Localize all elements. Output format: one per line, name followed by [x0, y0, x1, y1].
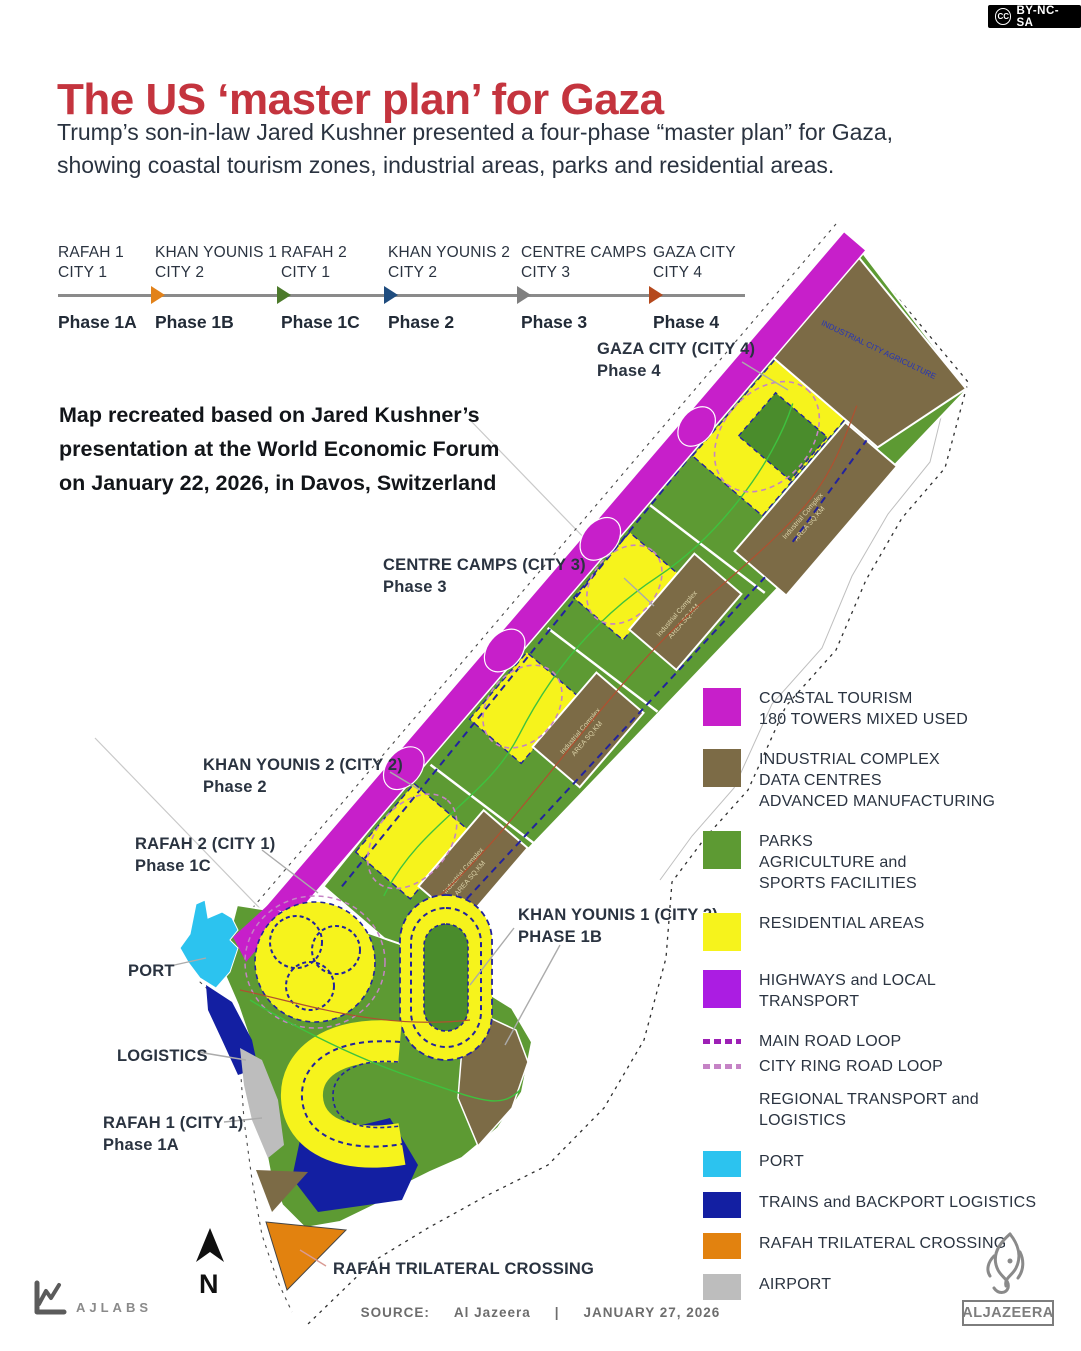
legend-key	[703, 1233, 759, 1259]
timeline-arrow-icon	[151, 286, 165, 304]
legend-swatch	[703, 913, 741, 951]
source-label: SOURCE:	[361, 1305, 430, 1320]
legend-key	[703, 1089, 759, 1131]
timeline-city-label: KHAN YOUNIS 2CITY 2	[388, 243, 521, 285]
legend-key	[703, 1031, 759, 1052]
timeline-phase-label: Phase 4	[653, 312, 745, 333]
timeline-phase-label: Phase 3	[521, 312, 653, 333]
residential-flower	[255, 902, 375, 1022]
legend-key	[703, 749, 759, 812]
legend-text: MAIN ROAD LOOP	[759, 1031, 901, 1052]
timeline-phase-phase-1b: KHAN YOUNIS 1CITY 2Phase 1B	[155, 243, 281, 333]
timeline-axis-segment	[653, 285, 745, 305]
timeline-city-label: RAFAH 1CITY 1	[58, 243, 155, 285]
source-row: SOURCE:Al Jazeera|JANUARY 27, 2026	[0, 1305, 1081, 1320]
source-divider: |	[555, 1305, 560, 1320]
legend-swatch	[703, 688, 741, 726]
timeline-phase-label: Phase 1A	[58, 312, 155, 333]
rafah-crossing-triangle	[266, 1222, 346, 1290]
legend-text: RESIDENTIAL AREAS	[759, 913, 925, 951]
legend-text: PARKSAGRICULTURE andSPORTS FACILITIES	[759, 831, 917, 894]
aljazeera-calligraphy-icon	[958, 1228, 1058, 1298]
timeline-arrow-icon	[517, 286, 531, 304]
legend-swatch	[703, 1151, 741, 1177]
legend-dash-line	[703, 1064, 741, 1069]
timeline-arrow-icon	[277, 286, 291, 304]
timeline-phase-phase-2: KHAN YOUNIS 2CITY 2Phase 2	[388, 243, 521, 333]
legend-item-main-road-loop: MAIN ROAD LOOP	[703, 1031, 1063, 1052]
legend-item-industrial-complex: INDUSTRIAL COMPLEXDATA CENTRESADVANCED M…	[703, 749, 1063, 812]
timeline-phase-phase-1c: RAFAH 2CITY 1Phase 1C	[281, 243, 388, 333]
legend-swatch	[703, 831, 741, 869]
legend-key	[703, 1274, 759, 1300]
map-note: Map recreated based on Jared Kushner’s p…	[59, 398, 499, 500]
legend-key	[703, 1056, 759, 1077]
legend-item-trains-and-backport-logistics: TRAINS and BACKPORT LOGISTICS	[703, 1192, 1063, 1218]
timeline-city-label: KHAN YOUNIS 1CITY 2	[155, 243, 281, 285]
legend-key	[703, 1151, 759, 1177]
timeline-axis-segment	[521, 285, 653, 305]
timeline-city-label: CENTRE CAMPSCITY 3	[521, 243, 653, 285]
legend-key	[703, 1192, 759, 1218]
timeline-city-label: GAZA CITYCITY 4	[653, 243, 745, 285]
legend-item-port: PORT	[703, 1151, 1063, 1177]
legend-text: REGIONAL TRANSPORT and LOGISTICS	[759, 1089, 1063, 1131]
map-legend: COASTAL TOURISM180 TOWERS MIXED USEDINDU…	[703, 688, 1063, 1315]
legend-key	[703, 913, 759, 951]
timeline-axis-segment	[388, 285, 521, 305]
legend-text: AIRPORT	[759, 1274, 831, 1300]
north-arrow-icon	[196, 1228, 224, 1262]
legend-text: TRAINS and BACKPORT LOGISTICS	[759, 1192, 1036, 1218]
timeline-arrow-icon	[649, 286, 663, 304]
timeline-axis-segment	[155, 285, 281, 305]
timeline-city-label: RAFAH 2CITY 1	[281, 243, 388, 285]
date-value: JANUARY 27, 2026	[584, 1305, 721, 1320]
legend-key	[703, 688, 759, 730]
page-subtitle: Trump’s son-in-law Jared Kushner present…	[57, 116, 893, 182]
legend-swatch	[703, 749, 741, 787]
compass-n-label: N	[199, 1269, 219, 1299]
legend-item-regional-transport-and-logistics: REGIONAL TRANSPORT and LOGISTICS	[703, 1089, 1063, 1131]
cc-icon: CC	[995, 8, 1011, 25]
timeline-arrow-icon	[384, 286, 398, 304]
legend-item-parks: PARKSAGRICULTURE andSPORTS FACILITIES	[703, 831, 1063, 894]
cc-license-badge: CC BY-NC-SA	[988, 5, 1081, 28]
legend-item-residential-areas: RESIDENTIAL AREAS	[703, 913, 1063, 951]
legend-text: HIGHWAYS and LOCALTRANSPORT	[759, 970, 936, 1012]
legend-text: PORT	[759, 1151, 804, 1177]
legend-text: INDUSTRIAL COMPLEXDATA CENTRESADVANCED M…	[759, 749, 995, 812]
timeline-axis-segment	[58, 285, 155, 305]
aljazeera-logo: ALJAZEERA	[958, 1228, 1058, 1328]
legend-swatch	[703, 1192, 741, 1218]
timeline-phase-label: Phase 2	[388, 312, 521, 333]
timeline-phase-phase-1a: RAFAH 1CITY 1Phase 1A	[58, 243, 155, 333]
timeline-phase-label: Phase 1C	[281, 312, 388, 333]
legend-item-coastal-tourism: COASTAL TOURISM180 TOWERS MIXED USED	[703, 688, 1063, 730]
legend-item-highways-and-local: HIGHWAYS and LOCALTRANSPORT	[703, 970, 1063, 1012]
legend-text: COASTAL TOURISM180 TOWERS MIXED USED	[759, 688, 968, 730]
legend-swatch	[703, 1274, 741, 1300]
aljazeera-wordmark: ALJAZEERA	[962, 1300, 1054, 1326]
legend-swatch	[703, 1233, 741, 1259]
legend-dash-line	[703, 1039, 741, 1044]
legend-text: CITY RING ROAD LOOP	[759, 1056, 943, 1077]
timeline-phase-label: Phase 1B	[155, 312, 281, 333]
timeline-phase-phase-3: CENTRE CAMPSCITY 3Phase 3	[521, 243, 653, 333]
license-label: BY-NC-SA	[1016, 5, 1074, 29]
infographic-page: Industrial ComplexAREA SQ.KM Industrial …	[0, 0, 1081, 1351]
phase-timeline: RAFAH 1CITY 1Phase 1AKHAN YOUNIS 1CITY 2…	[58, 243, 745, 333]
legend-key	[703, 831, 759, 894]
source-value: Al Jazeera	[454, 1305, 531, 1320]
timeline-phase-phase-4: GAZA CITYCITY 4Phase 4	[653, 243, 745, 333]
legend-key	[703, 970, 759, 1012]
stadium-inner-park	[424, 924, 468, 1031]
legend-swatch	[703, 970, 741, 1008]
timeline-axis-segment	[281, 285, 388, 305]
legend-item-city-ring-road-loop: CITY RING ROAD LOOP	[703, 1056, 1063, 1077]
